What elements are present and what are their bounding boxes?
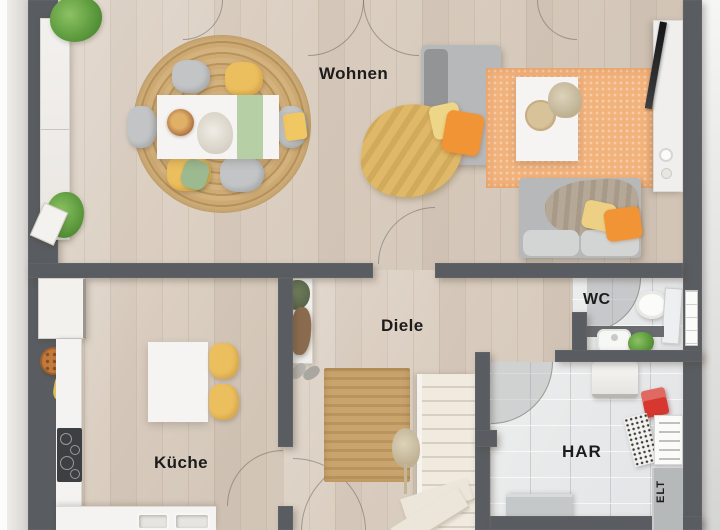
basin-faucet [611, 334, 618, 341]
room-label-diele: Diele [381, 317, 424, 334]
boiler [592, 362, 638, 398]
dining-chair [220, 156, 264, 192]
wall-wohnen-left [28, 263, 373, 278]
kitchen-wall-cabinet [38, 278, 86, 339]
wall-kueche-stub [278, 506, 293, 530]
cooktop [57, 428, 82, 482]
dining-chair [172, 60, 210, 93]
exterior-right [702, 0, 720, 530]
table-flowers [197, 112, 233, 154]
kitchen-table [148, 342, 208, 422]
wall-wc-stub [572, 312, 587, 352]
page-edge-left [0, 0, 7, 530]
dried-plant-stem [404, 464, 407, 494]
table-runner [237, 95, 263, 159]
wc-window [685, 290, 698, 346]
wall-right [683, 0, 702, 530]
wall-wohnen-right [435, 263, 683, 278]
burner [70, 445, 80, 455]
burner [60, 456, 74, 470]
room-label-wohnen: Wohnen [319, 65, 388, 82]
kitchen-chair [209, 384, 239, 420]
room-label-wc: WC [583, 292, 610, 308]
kitchen-chair [209, 343, 239, 379]
fruit-bowl [167, 109, 194, 136]
dining-chair-yellow [225, 62, 263, 96]
pillow-orange [441, 109, 486, 157]
sofa-cushion [523, 230, 579, 256]
decor-vase [661, 168, 672, 179]
kitchen-sink [174, 513, 210, 530]
sofa-pillow-orange [603, 206, 643, 243]
burner [60, 433, 72, 445]
floor-plan: Wohnen Diele Küche WC HAR ELT [0, 0, 720, 530]
burner [70, 469, 80, 479]
tool-shelf [654, 415, 683, 465]
dried-plant [392, 428, 420, 468]
dining-chair [127, 106, 157, 148]
wall-wc-har [555, 350, 702, 362]
decor-candle [659, 148, 673, 162]
coffee-table-plant [548, 82, 582, 118]
exterior-left [7, 0, 28, 530]
sideboard-divider [41, 129, 69, 130]
napkin-yellow [282, 112, 308, 142]
wall-har-doorstop [475, 430, 497, 447]
wall-kueche-diele [278, 278, 293, 447]
room-label-kueche: Küche [154, 454, 208, 471]
room-label-har: HAR [562, 443, 602, 460]
kitchen-sink [137, 513, 169, 530]
room-label-elt: ELT [656, 480, 667, 503]
